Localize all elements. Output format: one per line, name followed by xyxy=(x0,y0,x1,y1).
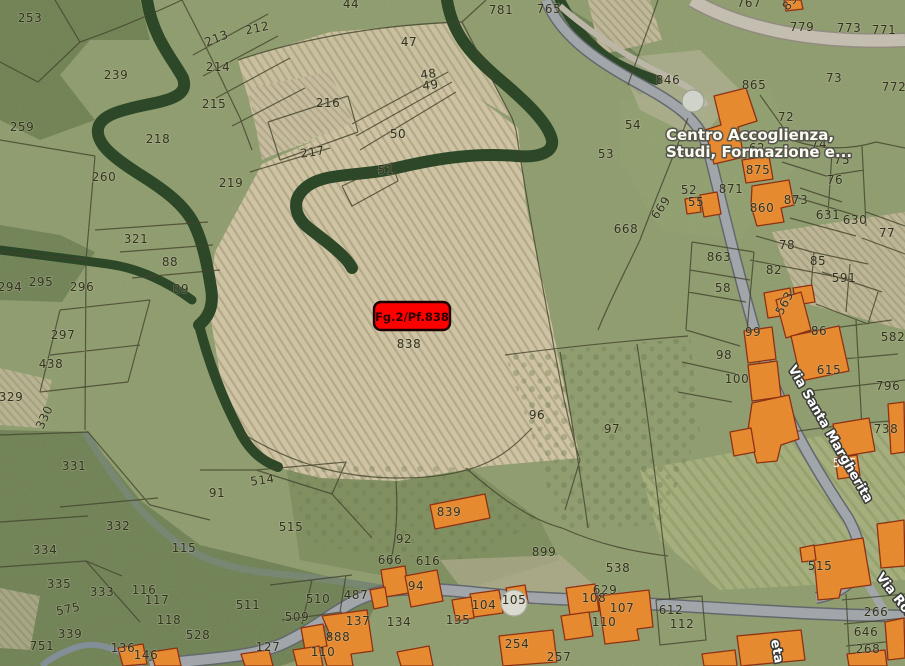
highlight-marker[interactable]: Fg.2/Pf.838 xyxy=(374,302,450,330)
parcel-label: 253 xyxy=(18,11,42,25)
parcel-label: 631 xyxy=(816,208,840,222)
parcel-label: 107 xyxy=(610,601,634,615)
parcel-label: 771 xyxy=(872,23,896,37)
parcel-label: 630 xyxy=(843,213,867,227)
parcel-label: 260 xyxy=(92,170,116,184)
parcel-label: 51 xyxy=(378,163,394,177)
parcel-label: 767 xyxy=(737,0,761,10)
building xyxy=(730,428,755,456)
round-structure xyxy=(682,90,704,112)
poi-label-line1: Centro Accoglienza, xyxy=(666,126,834,144)
parcel-label: 108 xyxy=(582,591,606,605)
parcel-label: 266 xyxy=(864,605,888,619)
parcel-label: 92 xyxy=(396,532,412,546)
building xyxy=(748,361,781,401)
parcel-label: 100 xyxy=(725,372,749,386)
parcel-label: 86 xyxy=(811,324,827,338)
parcel-label: 78 xyxy=(779,238,795,252)
parcel-label: 860 xyxy=(750,201,774,215)
parcel-label: 321 xyxy=(124,232,148,246)
parcel-label: 259 xyxy=(10,120,34,134)
parcel-label: 82 xyxy=(766,263,782,277)
building xyxy=(885,618,905,660)
parcel-label: 98 xyxy=(716,348,732,362)
parcel-label: 110 xyxy=(311,645,335,659)
parcel-label: 73 xyxy=(826,71,842,85)
parcel-label: 779 xyxy=(790,20,814,34)
parcel-label: 528 xyxy=(186,628,210,642)
parcel-label: 888 xyxy=(326,630,350,644)
parcel-label: 899 xyxy=(532,545,556,559)
parcel-label: 47 xyxy=(401,35,417,49)
parcel-label: 76 xyxy=(827,173,843,187)
parcel-label: 838 xyxy=(397,337,421,351)
parcel-label: 94 xyxy=(408,579,424,593)
parcel-label: 334 xyxy=(33,543,57,557)
parcel-label: 668 xyxy=(614,222,638,236)
parcel-label: 216 xyxy=(316,96,340,110)
parcel-label: 871 xyxy=(719,182,743,196)
parcel-label: 44 xyxy=(343,0,359,11)
parcel-label: 146 xyxy=(134,648,158,662)
parcel-label: 77 xyxy=(879,226,895,240)
parcel-label: 332 xyxy=(106,519,130,533)
parcel-label: 118 xyxy=(157,613,181,627)
parcel-label: 134 xyxy=(387,615,411,629)
parcel-label: 511 xyxy=(236,598,260,612)
building xyxy=(877,520,905,568)
parcel-label: 487 xyxy=(344,588,368,602)
poi-label-line2: Studi, Formazione e... xyxy=(666,143,852,161)
parcel-label: 137 xyxy=(346,614,370,628)
parcel-label: 296 xyxy=(70,280,94,294)
parcel-label: 105 xyxy=(502,593,526,607)
parcel-label: 515 xyxy=(279,520,303,534)
parcel-label: 88 xyxy=(162,255,178,269)
map-canvas[interactable]: 2532132122142392152592182602193218889294… xyxy=(0,0,905,666)
parcel-label: 110 xyxy=(592,615,616,629)
building xyxy=(370,587,388,609)
parcel-label: 219 xyxy=(219,176,243,190)
parcel-label: 646 xyxy=(854,625,878,639)
parcel-label: 666 xyxy=(378,553,402,567)
parcel-label: 254 xyxy=(505,637,529,651)
parcel-label: 268 xyxy=(856,642,880,656)
parcel-label: 329 xyxy=(0,390,23,404)
parcel-label: 751 xyxy=(30,639,54,653)
parcel-label: 49 xyxy=(421,77,439,93)
map-viewport[interactable]: 2532132122142392152592182602193218889294… xyxy=(0,0,905,666)
parcel-label: 89 xyxy=(173,282,189,296)
parcel-label: 772 xyxy=(882,80,905,94)
parcel-label: 846 xyxy=(656,73,680,87)
parcel-label: 738 xyxy=(874,422,898,436)
parcel-label: 72 xyxy=(778,110,794,124)
parcel-label: 214 xyxy=(206,60,230,74)
parcel-label: 538 xyxy=(606,561,630,575)
parcel-label: 331 xyxy=(62,459,86,473)
poi-label: Centro Accoglienza, Studi, Formazione e.… xyxy=(666,126,852,161)
parcel-label: 257 xyxy=(547,650,571,664)
parcel-label: 873 xyxy=(784,193,808,207)
parcel-label: 863 xyxy=(707,250,731,264)
parcel-label: 136 xyxy=(111,641,135,655)
parcel-label: 796 xyxy=(876,379,900,393)
parcel-label: 616 xyxy=(416,554,440,568)
parcel-label: 50 xyxy=(390,127,406,141)
parcel-label: 127 xyxy=(256,640,280,654)
parcel-label: 294 xyxy=(0,280,22,294)
parcel-label: 96 xyxy=(529,408,545,422)
parcel-label: 591 xyxy=(832,271,856,285)
parcel-label: 97 xyxy=(604,422,620,436)
parcel-label: 297 xyxy=(51,328,75,342)
parcel-label: 215 xyxy=(202,97,226,111)
parcel-label: 339 xyxy=(58,627,82,641)
parcel-label: 333 xyxy=(90,585,114,599)
parcel-label: 117 xyxy=(145,593,169,607)
parcel-label: 773 xyxy=(837,21,861,35)
parcel-label: 781 xyxy=(489,3,513,17)
building xyxy=(561,612,593,640)
parcel-label: 91 xyxy=(209,486,225,500)
parcel-label: 85 xyxy=(810,254,826,268)
parcel-label: 53 xyxy=(598,147,614,161)
parcel-label: 218 xyxy=(146,132,170,146)
parcel-label: 58 xyxy=(715,281,731,295)
parcel-label: 865 xyxy=(742,78,766,92)
parcel-label: 54 xyxy=(625,118,641,132)
parcel-label: 509 xyxy=(285,610,309,624)
parcel-label: 55 xyxy=(688,195,704,209)
parcel-label: 99 xyxy=(745,325,761,339)
parcel-label: 115 xyxy=(172,541,196,555)
parcel-label: 438 xyxy=(39,357,63,371)
parcel-label: 765 xyxy=(537,2,561,16)
parcel-label: 104 xyxy=(472,598,496,612)
parcel-label: 839 xyxy=(437,505,461,519)
parcel-label: 335 xyxy=(47,577,71,591)
parcel-label: 515 xyxy=(808,559,832,573)
highlight-marker-label: Fg.2/Pf.838 xyxy=(375,310,449,324)
parcel-label: 615 xyxy=(817,363,841,377)
parcel-label: 135 xyxy=(446,613,470,627)
parcel-label: 582 xyxy=(881,330,905,344)
parcel-label: 295 xyxy=(29,275,53,289)
parcel-label: 112 xyxy=(670,617,694,631)
parcel-label: 510 xyxy=(306,592,330,606)
parcel-label: 612 xyxy=(659,603,683,617)
parcel-label: 239 xyxy=(104,68,128,82)
parcel-label: 875 xyxy=(746,163,770,177)
